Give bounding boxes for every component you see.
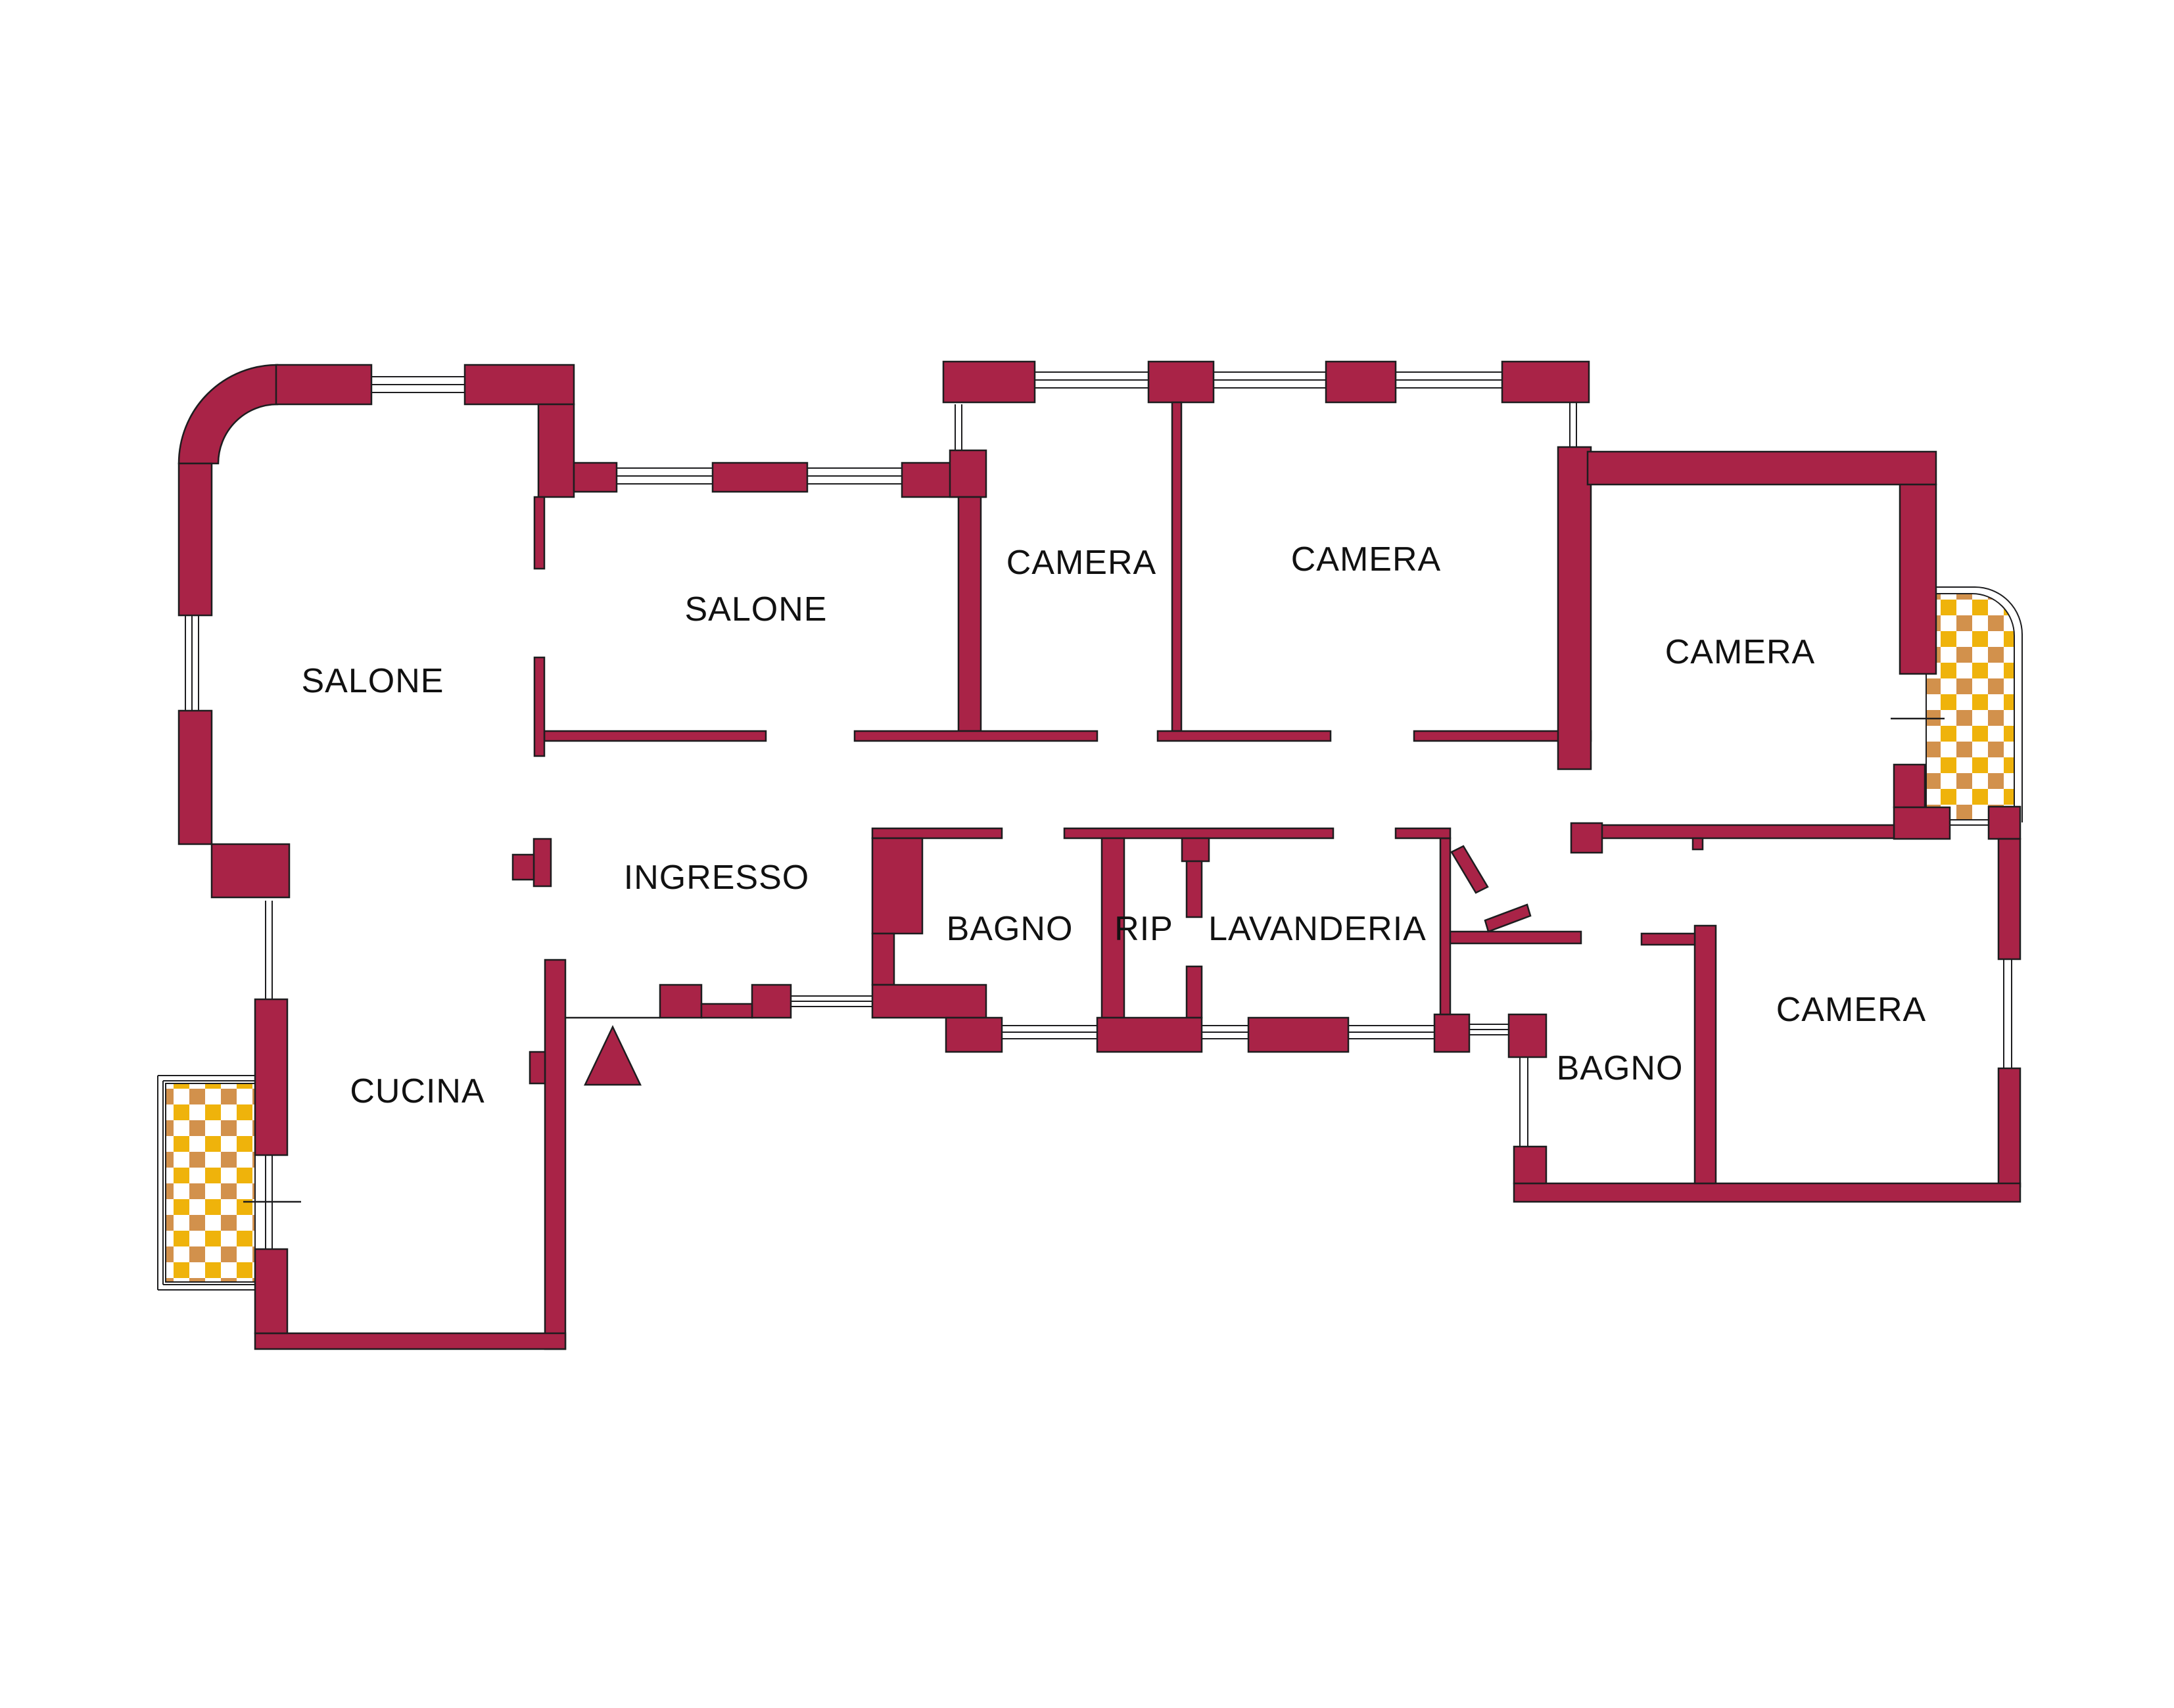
wall: [1695, 926, 1716, 1183]
wall: [255, 1249, 287, 1333]
wall: [1591, 825, 1894, 838]
wall: [179, 711, 212, 844]
floor-plan: SALONE SALONE CAMERA CAMERA CAMERA CAMER…: [0, 0, 2174, 1708]
room-label-lavanderia: LAVANDERIA: [1208, 910, 1427, 948]
room-label-bagno-2: BAGNO: [1557, 1049, 1684, 1087]
window: [1202, 1026, 1248, 1039]
wall: [538, 404, 574, 497]
window: [1214, 372, 1326, 388]
window: [1469, 1024, 1509, 1035]
wall: [1187, 861, 1202, 917]
wall: [872, 838, 922, 934]
wall: [713, 463, 807, 492]
wall: [1998, 839, 2020, 959]
room-label-rip: RIP: [1114, 910, 1173, 948]
wall: [1509, 1014, 1546, 1057]
window: [1570, 402, 1576, 447]
window: [1520, 1057, 1528, 1147]
wall: [1514, 1147, 1546, 1183]
wall: [1064, 828, 1333, 838]
window: [371, 377, 465, 392]
wall: [701, 1004, 752, 1018]
wall: [1642, 934, 1695, 945]
wall: [1588, 452, 1936, 485]
wall-arc-corner: [179, 365, 277, 463]
window: [185, 615, 199, 711]
room-label-camera-1: CAMERA: [1006, 544, 1156, 582]
wall: [1440, 838, 1450, 1014]
window: [1002, 1026, 1097, 1039]
checkerboard-tiles: [1926, 594, 2014, 820]
wall: [1558, 447, 1591, 769]
wall: [1998, 1068, 2020, 1187]
wall: [212, 844, 289, 897]
wall: [574, 463, 617, 492]
door-leaf: [1452, 846, 1488, 893]
wall: [872, 828, 1002, 838]
wall: [660, 985, 701, 1018]
walls: [179, 362, 2020, 1349]
wall: [1894, 807, 1950, 839]
wall: [1172, 402, 1181, 731]
checkerboard-tiles: [166, 1083, 255, 1282]
wall: [544, 731, 766, 741]
room-label-cucina: CUCINA: [350, 1072, 484, 1110]
wall: [1148, 362, 1214, 402]
wall: [872, 934, 894, 985]
wall: [465, 365, 574, 404]
balcony-left: [158, 1076, 255, 1290]
wall: [855, 731, 1097, 741]
wall: [1248, 1018, 1348, 1052]
wall: [752, 985, 791, 1018]
room-label-camera-4: CAMERA: [1776, 991, 1926, 1029]
room-label-camera-2: CAMERA: [1291, 540, 1441, 579]
wall: [1450, 932, 1581, 943]
window: [1035, 372, 1148, 388]
wall: [1158, 731, 1331, 741]
wall: [1989, 807, 2020, 839]
wall: [1571, 823, 1602, 853]
windows: [185, 372, 2012, 1249]
window: [1348, 1026, 1434, 1039]
wall: [530, 1052, 545, 1083]
wall: [958, 497, 981, 731]
window: [807, 468, 902, 484]
window: [617, 468, 713, 484]
window: [2004, 959, 2012, 1068]
wall: [534, 839, 551, 886]
window: [266, 901, 272, 999]
door-leaf: [1485, 905, 1530, 932]
wall: [1434, 1014, 1469, 1052]
wall: [1326, 362, 1396, 402]
room-label-salone-2: SALONE: [685, 590, 828, 629]
wall: [1693, 838, 1703, 849]
room-label-salone-1: SALONE: [302, 662, 444, 700]
wall: [179, 463, 212, 615]
wall: [1182, 838, 1209, 861]
entrance-triangle-icon: [585, 1027, 640, 1085]
floor-plan-canvas: SALONE SALONE CAMERA CAMERA CAMERA CAMER…: [0, 0, 2174, 1708]
wall: [1900, 485, 1936, 674]
wall: [1502, 362, 1589, 402]
room-label-ingresso: INGRESSO: [624, 859, 810, 897]
wall: [1894, 765, 1925, 807]
room-label-camera-3: CAMERA: [1665, 633, 1815, 671]
wall: [1097, 1018, 1202, 1052]
wall: [950, 450, 986, 497]
wall: [545, 960, 565, 1349]
wall: [534, 657, 544, 756]
wall: [1187, 966, 1202, 1018]
wall: [534, 497, 544, 569]
wall: [1514, 1183, 2020, 1202]
wall: [872, 985, 986, 1018]
wall: [943, 362, 1035, 402]
wall: [946, 1018, 1002, 1052]
wall: [276, 365, 371, 404]
window: [955, 404, 962, 450]
wall: [1396, 828, 1450, 838]
wall: [255, 999, 287, 1155]
window: [1396, 372, 1502, 388]
balcony-top-right: [1926, 587, 2022, 825]
room-label-bagno-1: BAGNO: [947, 910, 1074, 948]
window: [791, 996, 872, 1007]
wall: [513, 855, 534, 880]
wall: [255, 1333, 565, 1349]
